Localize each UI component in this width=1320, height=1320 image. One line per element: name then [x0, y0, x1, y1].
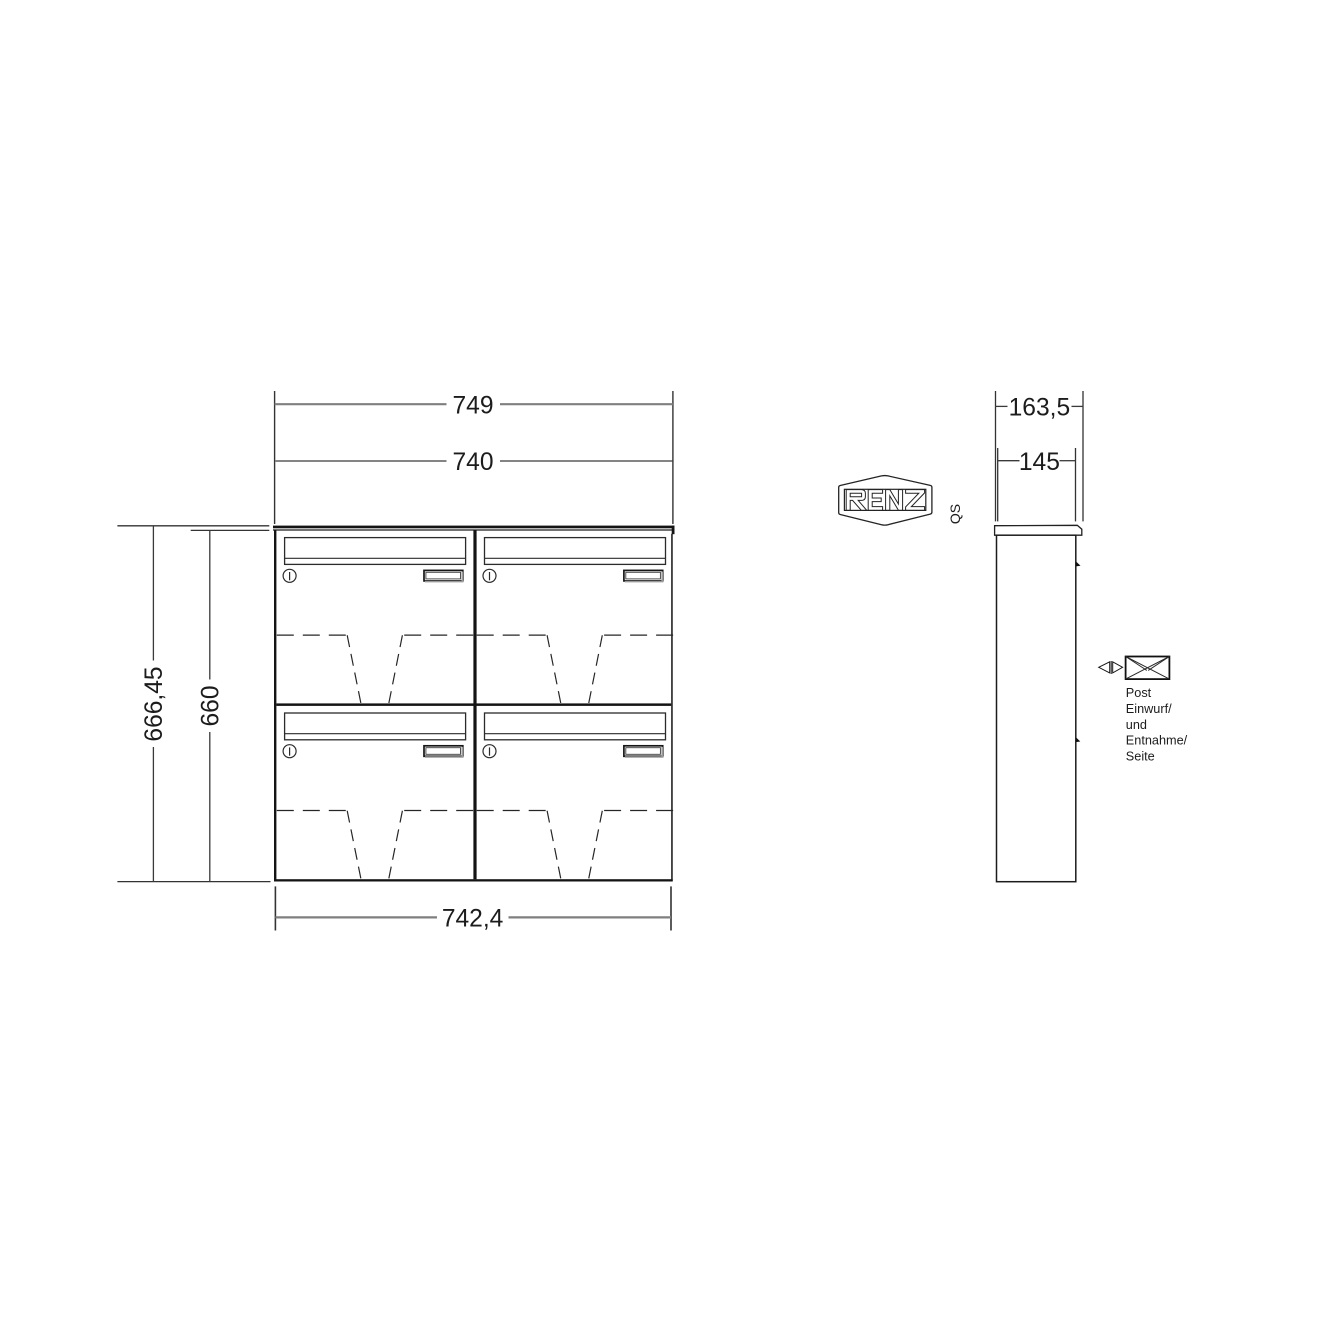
svg-text:und: und: [1126, 718, 1147, 732]
svg-text:742,4: 742,4: [442, 906, 504, 933]
svg-text:666,45: 666,45: [141, 666, 168, 741]
svg-text:QS: QS: [947, 504, 963, 524]
svg-text:749: 749: [452, 392, 493, 419]
svg-text:163,5: 163,5: [1009, 395, 1071, 422]
svg-text:Post: Post: [1126, 686, 1152, 700]
svg-text:145: 145: [1019, 449, 1060, 476]
svg-text:740: 740: [452, 449, 493, 476]
svg-text:Einwurf/: Einwurf/: [1126, 702, 1172, 716]
svg-text:Entnahme/: Entnahme/: [1126, 734, 1188, 748]
svg-text:660: 660: [198, 685, 225, 726]
svg-text:Seite: Seite: [1126, 750, 1155, 764]
